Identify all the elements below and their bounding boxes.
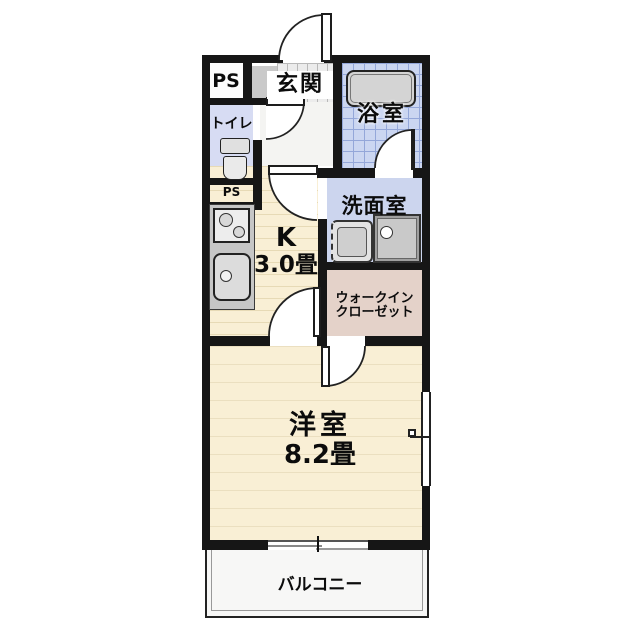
western-room-label: 洋室 8.2畳: [250, 408, 390, 472]
bathroom-label: 浴室: [342, 102, 422, 128]
floor-plan: PS 玄関 浴室 トイレ PS 洗面室 K 3.0畳 ウォークイン クローゼット…: [0, 0, 640, 640]
vanity-basin-icon: [380, 226, 393, 239]
kitchen-size-label: 3.0畳: [254, 253, 318, 278]
bathtub-inner-line: [350, 74, 412, 103]
balcony-label: バルコニー: [255, 572, 385, 598]
balcony-window-center-tick: [317, 536, 319, 552]
kitchen-type-label: K: [276, 224, 296, 253]
closet-door-leaf: [321, 346, 330, 387]
toilet-bowl-icon: [223, 156, 247, 180]
walk-in-closet-label-line1: ウォークイン: [335, 292, 413, 306]
ps-lower-label: PS: [210, 183, 253, 202]
ps-top-label: PS: [209, 64, 243, 98]
kitchen-label: K 3.0畳: [242, 222, 330, 280]
kitchen-door-leaf: [313, 287, 321, 337]
walk-in-closet-label: ウォークイン クローゼット: [327, 282, 422, 330]
faucet-icon: [220, 270, 232, 282]
toilet-tank-icon: [220, 138, 250, 154]
entrance-door-leaf: [321, 13, 332, 62]
western-room-name-label: 洋室: [289, 411, 351, 441]
washing-machine-inner: [337, 227, 367, 257]
western-room-size-label: 8.2畳: [284, 441, 356, 470]
washroom-door-leaf: [268, 165, 318, 175]
entrance-label: 玄関: [267, 71, 333, 99]
bathroom-door-leaf: [411, 129, 415, 170]
toilet-label: トイレ: [210, 110, 253, 140]
walk-in-closet-label-line2: クローゼット: [335, 306, 413, 320]
stove-burner-icon: [219, 213, 233, 227]
washroom-label: 洗面室: [327, 193, 422, 221]
